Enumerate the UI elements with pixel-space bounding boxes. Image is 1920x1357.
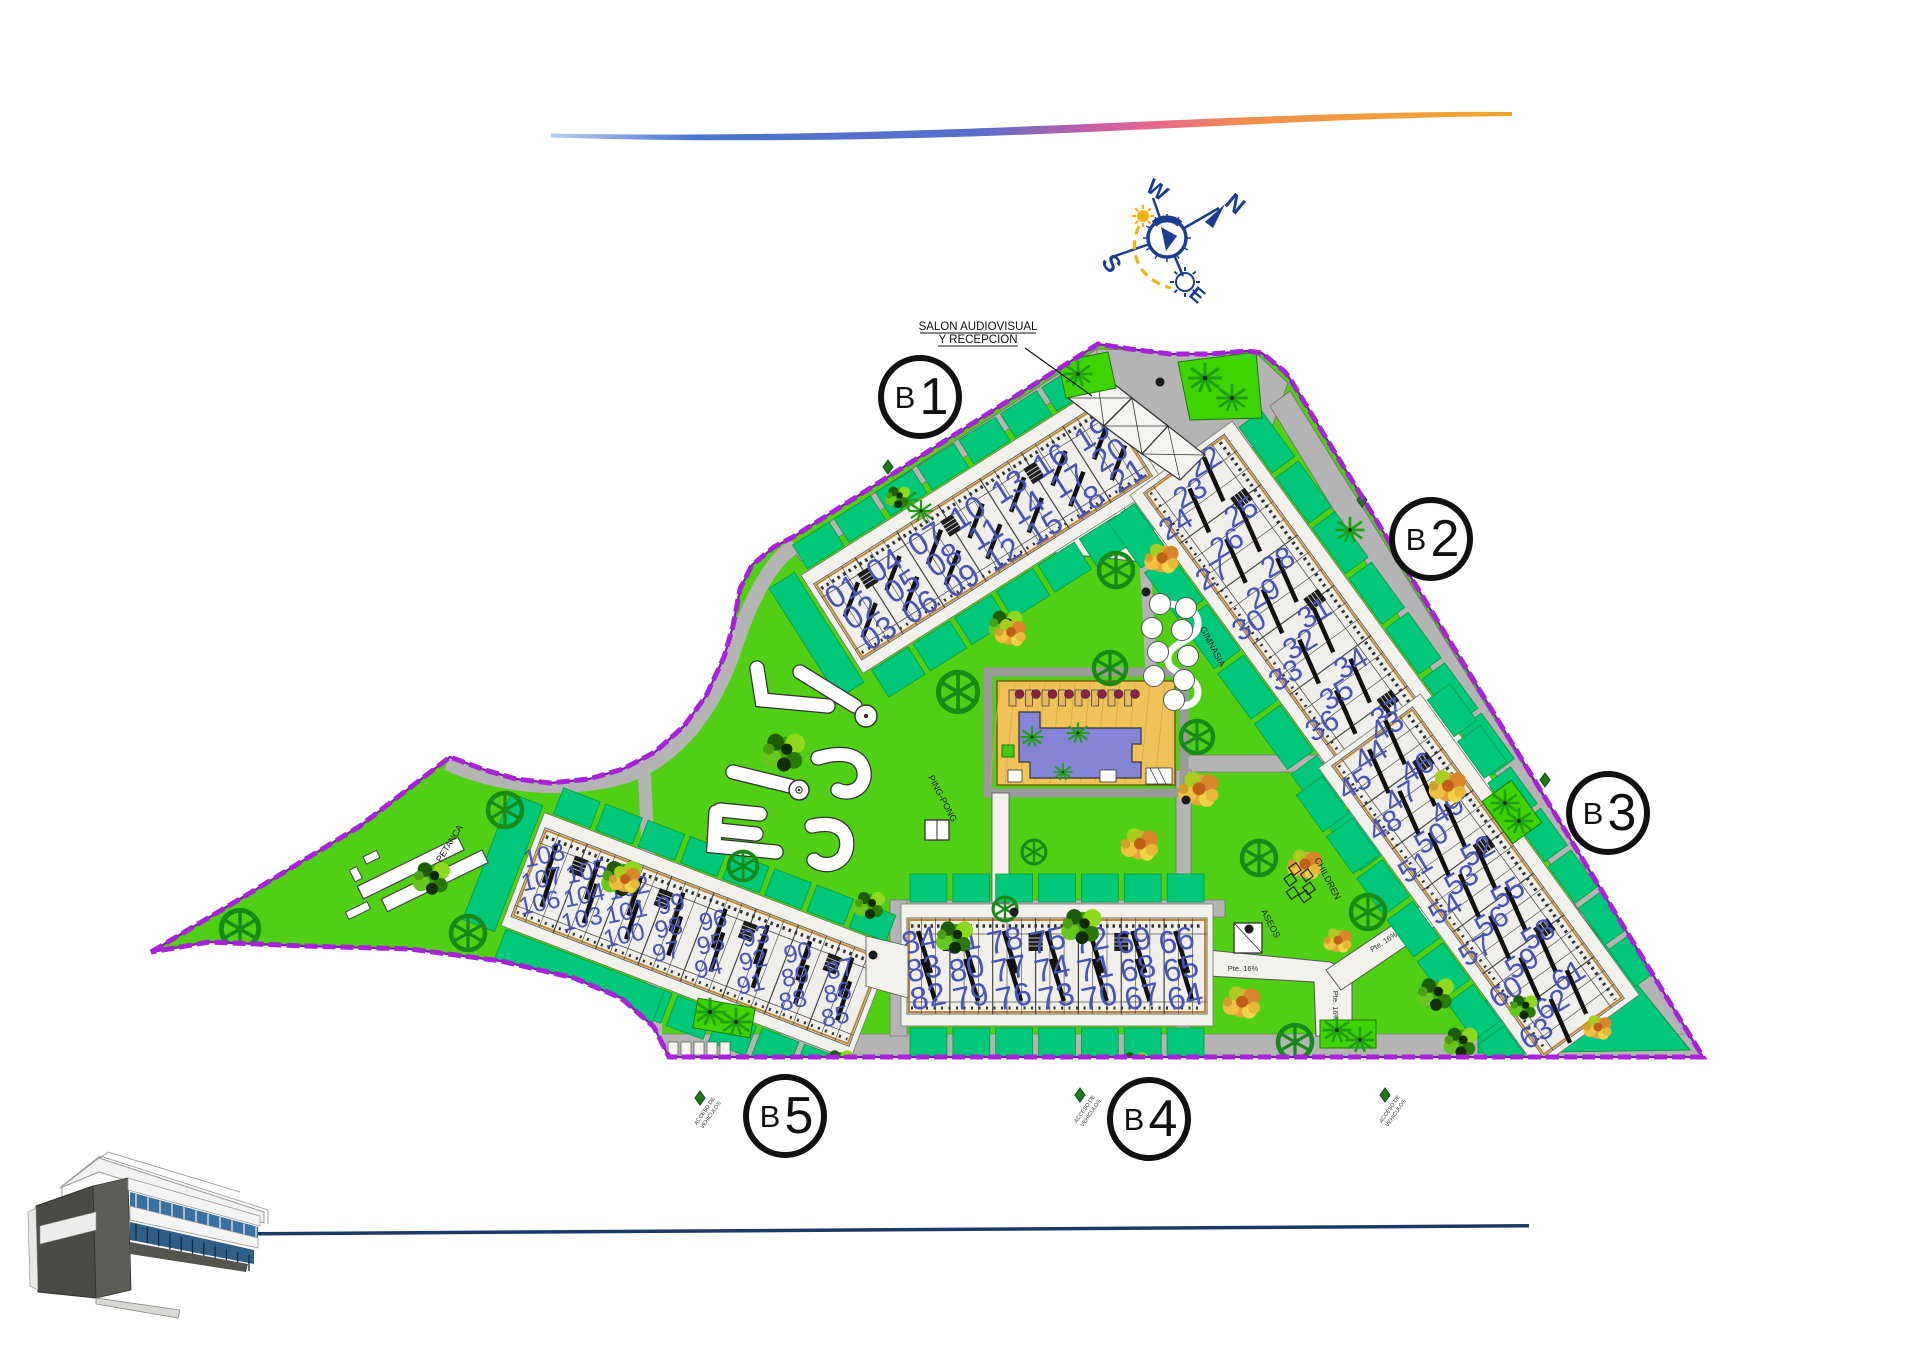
svg-text:64: 64 xyxy=(1164,975,1206,1018)
svg-text:5: 5 xyxy=(785,1087,814,1145)
svg-text:67: 67 xyxy=(1121,975,1163,1018)
svg-text:76: 76 xyxy=(992,975,1034,1018)
svg-text:73: 73 xyxy=(1035,975,1077,1018)
svg-text:79: 79 xyxy=(950,975,992,1018)
svg-text:82: 82 xyxy=(907,975,949,1018)
svg-text:88: 88 xyxy=(776,984,809,1017)
svg-text:70: 70 xyxy=(1078,975,1120,1018)
svg-text:3: 3 xyxy=(1608,784,1637,842)
svg-text:Y RECEPCION: Y RECEPCION xyxy=(938,334,1017,346)
svg-text:97: 97 xyxy=(650,935,683,968)
svg-text:1: 1 xyxy=(920,368,949,426)
svg-text:2: 2 xyxy=(1431,510,1460,568)
svg-text:B: B xyxy=(1124,1102,1145,1137)
svg-text:85: 85 xyxy=(819,1000,852,1033)
svg-text:Pte. 16%: Pte. 16% xyxy=(1228,964,1259,973)
svg-text:B: B xyxy=(760,1099,781,1134)
svg-text:B: B xyxy=(895,380,916,415)
svg-text:91: 91 xyxy=(734,968,767,1001)
svg-text:4: 4 xyxy=(1149,1090,1178,1148)
svg-text:B: B xyxy=(1406,522,1427,557)
svg-text:Pte. 16%: Pte. 16% xyxy=(1331,991,1340,1022)
svg-text:SALON AUDIOVISUAL: SALON AUDIOVISUAL xyxy=(919,321,1038,333)
svg-text:94: 94 xyxy=(692,951,725,984)
svg-text:B: B xyxy=(1583,796,1604,831)
